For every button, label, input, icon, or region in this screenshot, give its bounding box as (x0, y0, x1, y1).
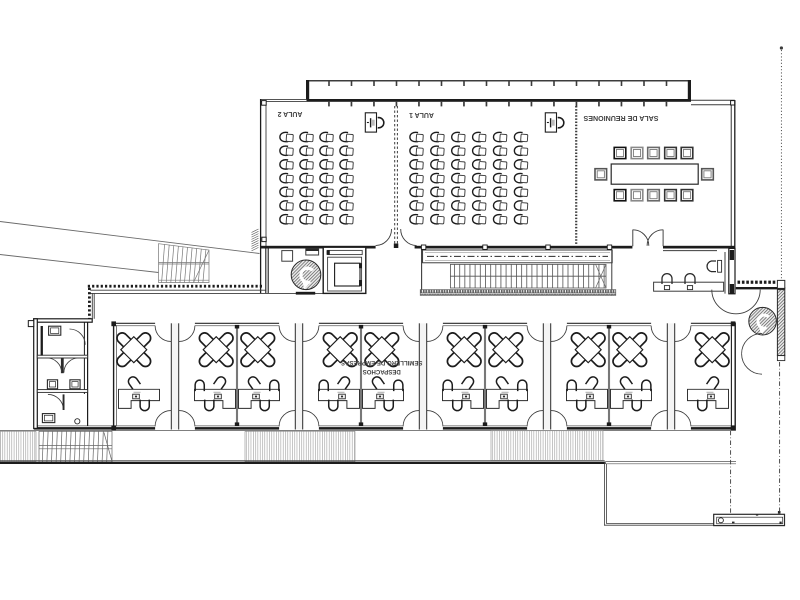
svg-text:SEMILLERO DE EMPRESAS: SEMILLERO DE EMPRESAS (341, 359, 423, 366)
svg-text:AULA 1: AULA 1 (409, 111, 434, 118)
svg-text:DESPACHOS: DESPACHOS (363, 368, 401, 375)
svg-text:AULA 2: AULA 2 (278, 110, 303, 117)
svg-text:SALA DE REUNIONES: SALA DE REUNIONES (583, 114, 658, 122)
